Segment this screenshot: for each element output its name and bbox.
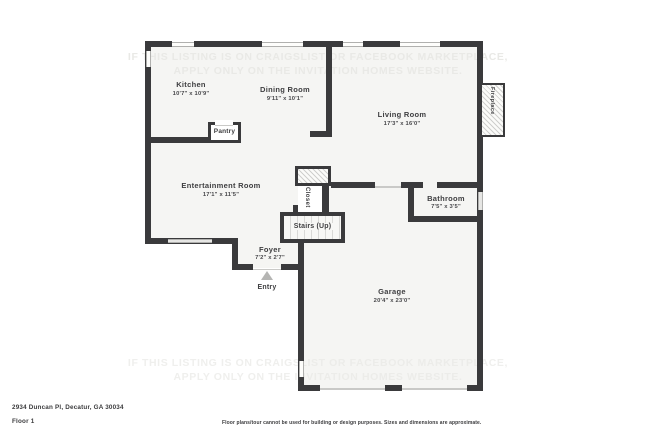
foyer-dims: 7'2" x 2'7" bbox=[255, 255, 285, 261]
wall-top-4 bbox=[363, 41, 400, 47]
wall-bathroom-bottom bbox=[408, 216, 483, 222]
window-top-2 bbox=[262, 42, 303, 47]
pantry-door-line bbox=[215, 125, 233, 126]
wall-mid-3 bbox=[437, 182, 483, 188]
garage-dims: 20'4" x 23'0" bbox=[374, 298, 411, 304]
watermark-line-2: APPLY ONLY ON THE INVITATION HOMES WEBSI… bbox=[173, 65, 462, 77]
wall-top-3 bbox=[303, 41, 343, 47]
floor-number-text: Floor 1 bbox=[12, 418, 34, 425]
wall-foyer-bottom-1 bbox=[238, 264, 253, 270]
garage-door-line-2 bbox=[402, 388, 467, 390]
entry-label: Entry bbox=[258, 284, 277, 291]
kitchen-label: Kitchen bbox=[176, 80, 206, 89]
window-entertainment-bottom bbox=[168, 239, 212, 244]
window-top-1 bbox=[172, 42, 194, 47]
stairs-label: Stairs (Up) bbox=[292, 223, 334, 230]
kitchen-dims: 10'7" x 10'9" bbox=[173, 91, 210, 97]
wall-garage-bottom-1 bbox=[298, 385, 320, 391]
floor-plan-page: IF THIS LISTING IS ON CRAIGSLIST OR FACE… bbox=[0, 0, 650, 433]
watermark-bottom-line-1: IF THIS LISTING IS ON CRAIGSLIST OR FACE… bbox=[128, 357, 508, 369]
bathroom-label: Bathroom bbox=[427, 194, 465, 203]
foyer-label: Foyer bbox=[259, 245, 281, 254]
bathroom-dims: 7'5" x 3'5" bbox=[431, 204, 461, 210]
wall-dining-living-divider bbox=[326, 41, 332, 137]
wall-closet-left-stub bbox=[293, 205, 298, 212]
window-bathroom-right bbox=[478, 192, 483, 210]
wall-garage-bottom-3 bbox=[467, 385, 483, 391]
dining-room-dims: 9'11" x 10'1" bbox=[267, 96, 303, 102]
garage-door-line-1 bbox=[320, 388, 385, 390]
living-room-dims: 17'3" x 16'0" bbox=[384, 121, 421, 127]
wall-kitchen-bottom bbox=[145, 137, 210, 143]
entertainment-room-label: Entertainment Room bbox=[181, 181, 260, 190]
wall-mid-1 bbox=[331, 182, 375, 188]
wall-divider-foot bbox=[310, 131, 332, 137]
entry-door-line bbox=[253, 269, 281, 271]
window-top-4 bbox=[400, 42, 440, 47]
living-room-label: Living Room bbox=[378, 110, 427, 119]
window-top-3 bbox=[343, 42, 363, 47]
closet-label: Closet bbox=[304, 187, 310, 213]
entertainment-room-dims: 17'1" x 11'5" bbox=[203, 192, 239, 198]
address-text: 2934 Duncan Pl, Decatur, GA 30034 bbox=[12, 404, 124, 411]
wall-garage-bottom-2 bbox=[385, 385, 402, 391]
closet-interior bbox=[298, 186, 323, 212]
watermark-bottom-line-2: APPLY ONLY ON THE INVITATION HOMES WEBSI… bbox=[173, 371, 462, 383]
pantry-label: Pantry bbox=[214, 128, 235, 135]
window-left bbox=[146, 51, 151, 67]
disclaimer-text: Floor plans/tour cannot be used for buil… bbox=[222, 420, 481, 426]
garage-label: Garage bbox=[378, 287, 406, 296]
dining-room-label: Dining Room bbox=[260, 85, 310, 94]
fireplace-label: Fireplace bbox=[489, 87, 495, 133]
entry-arrow-icon bbox=[261, 271, 273, 280]
watermark-line-1: IF THIS LISTING IS ON CRAIGSLIST OR FACE… bbox=[128, 51, 508, 63]
wall-top-2 bbox=[194, 41, 262, 47]
garage-entry-door-line bbox=[375, 186, 401, 188]
wall-closet-right bbox=[322, 183, 329, 212]
garage-side-door bbox=[299, 361, 304, 377]
